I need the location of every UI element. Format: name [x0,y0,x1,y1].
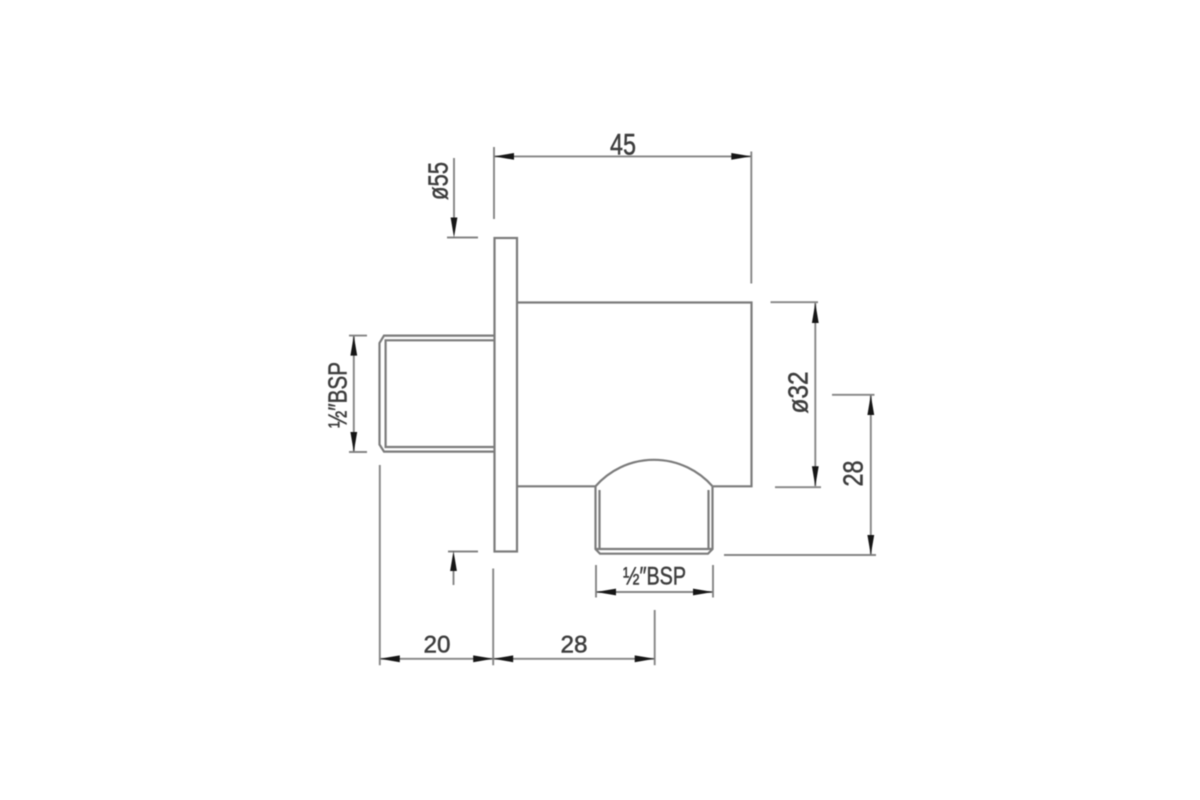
svg-text:ø32: ø32 [783,372,814,414]
svg-text:ø55: ø55 [423,162,454,200]
svg-text:28: 28 [561,632,588,659]
svg-text:½″BSP: ½″BSP [323,362,353,428]
svg-text:½″BSP: ½″BSP [623,563,686,591]
svg-text:45: 45 [610,129,636,162]
svg-text:28: 28 [838,461,869,487]
svg-text:20: 20 [424,632,451,659]
